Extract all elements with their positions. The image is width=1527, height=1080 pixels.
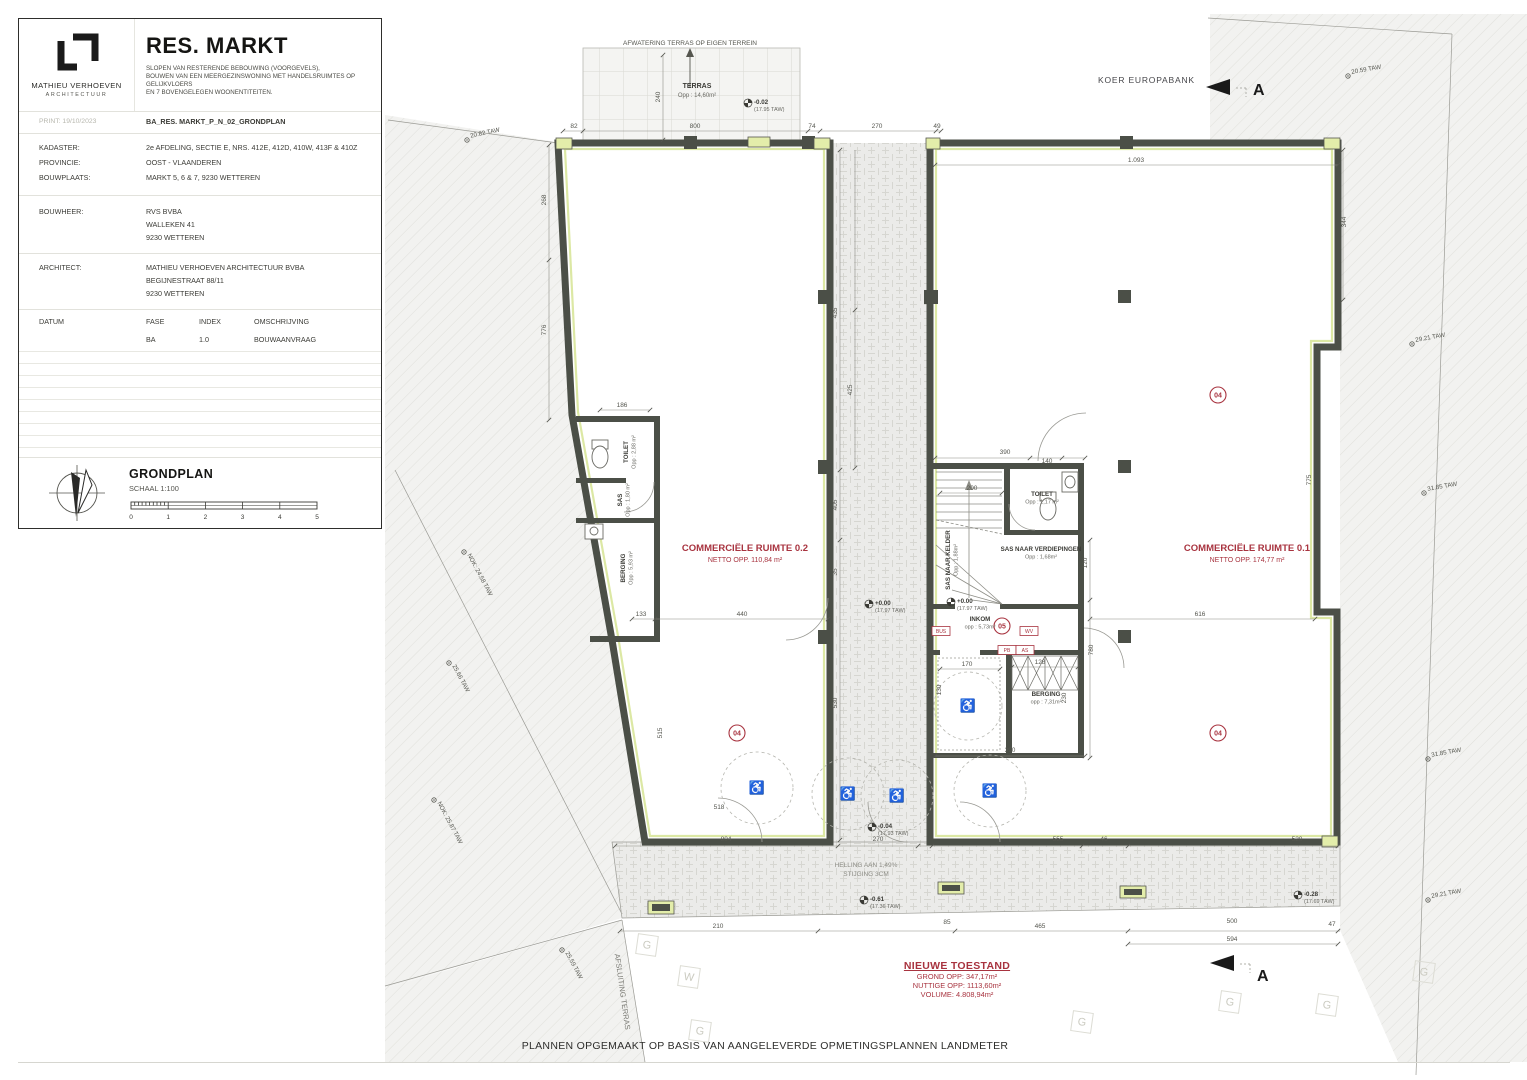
red-box-tag: WV (1020, 627, 1038, 636)
dimension-text: 130 (936, 684, 943, 695)
plan-scale: SCHAAL 1:100 (129, 484, 179, 493)
wheelchair-icon: ♿ (840, 786, 856, 801)
project-description: SLOPEN VAN RESTERENDE BEBOUWING (VOORGEV… (146, 65, 374, 97)
section-letter: A (1253, 82, 1265, 99)
level-value: +0.00 (875, 600, 891, 607)
terras-label: TERRAS (683, 83, 712, 90)
room-area: Opp : 1,88m² (954, 544, 960, 576)
dimension-text: 140 (1042, 458, 1053, 465)
kadaster-section: KADASTER: 2e AFDELING, SECTIE E, NRS. 41… (19, 133, 381, 196)
section-marker-bottom: A (1210, 955, 1269, 985)
sheet-frame-line (18, 1062, 1510, 1063)
compass-icon (47, 463, 107, 523)
dimension-text: 46 (1100, 836, 1108, 843)
utility-letter: G (1225, 996, 1235, 1009)
utility-letter: G (1419, 966, 1429, 979)
dimension-text: 200 (967, 485, 978, 492)
room-name: SAS NAAR KELDER (945, 530, 952, 590)
dimension-text: 804 (721, 836, 732, 843)
dimension-text: 435 (832, 307, 839, 318)
utility-letter: G (695, 1025, 705, 1038)
level-taw: (17.69 TAW) (1304, 899, 1335, 905)
dimension-text: 270 (872, 123, 883, 130)
scale-bar: 0 1 2 3 4 5 (129, 499, 329, 523)
dimension-text: 530 (832, 697, 839, 708)
room-area: Opp : 5,93 m² (629, 551, 635, 585)
field-value: 9230 WETTEREN (146, 233, 204, 242)
commercial-room-name: COMMERCIËLE RUIMTE 0.2 (682, 543, 808, 554)
architect-name: MATHIEU VERHOEVEN (19, 81, 134, 90)
room-name: SAS (617, 494, 624, 507)
table-cell: BA (146, 335, 156, 344)
red-box-tag: BUS (932, 627, 950, 636)
empty-revision-rows (19, 351, 381, 458)
level-value: -0.02 (754, 99, 769, 106)
project-title: RES. MARKT (146, 33, 288, 59)
commercial-room-area: NETTO OPP. 110,84 m² (708, 557, 783, 564)
helling-note-2: STIJGING 3CM (843, 871, 889, 878)
room-area: Opp : 2,88 m² (632, 435, 638, 469)
field-value: MATHIEU VERHOEVEN ARCHITECTUUR BVBA (146, 263, 304, 272)
sheet: { "titleblock": { "logo_name": "MATHIEU … (0, 0, 1527, 1080)
dimension-text: 133 (636, 611, 647, 618)
field-value: 2e AFDELING, SECTIE E, NRS. 412E, 412D, … (146, 143, 357, 152)
dimension-text: 230 (1061, 692, 1068, 703)
dimension-text: 616 (1195, 611, 1206, 618)
print-date: PRINT: 19/10/2023 (39, 118, 96, 125)
dimension-text: 425 (847, 384, 854, 395)
level-taw: (17.93 TAW) (878, 831, 909, 837)
room-area: Opp : 1,17 m² (1025, 500, 1059, 506)
level-value: -0.61 (870, 896, 885, 903)
utility-marker: G (1071, 1011, 1094, 1034)
red-box-text: WV (1025, 629, 1034, 635)
room-area: opp : 5,73m² (965, 625, 996, 631)
dimension-text: 555 (1053, 836, 1064, 843)
table-cell: BOUWAANVRAAG (254, 335, 316, 344)
dimension-text: 82 (570, 123, 578, 130)
description-line: EN 7 BOVENGELEGEN WOONENTITEITEN. (146, 89, 374, 97)
dimension-text: 170 (962, 661, 973, 668)
utility-marker: W (678, 966, 701, 989)
scale-tick: 0 (129, 514, 133, 521)
plan-name-section: GRONDPLAN SCHAAL 1:100 0 1 2 3 4 5 (19, 457, 381, 527)
door-tag: 04 (1210, 725, 1226, 741)
room-name: SAS NAAR VERDIEPINGEN (1001, 546, 1082, 553)
commercial-room-area: NETTO OPP. 174,77 m² (1210, 557, 1285, 564)
nuttige-opp: NUTTIGE OPP: 1113,60m² (866, 981, 1048, 990)
dimension-text: 800 (690, 123, 701, 130)
room-area: Opp : 1,68m² (1025, 555, 1057, 561)
wheelchair-icon: ♿ (889, 788, 905, 803)
wheelchair-icon: ♿ (982, 783, 998, 798)
koer-europabank-label: KOER EUROPABANK (1098, 75, 1195, 85)
print-row: PRINT: 19/10/2023 BA_RES. MARKT_P_N_02_G… (19, 111, 381, 134)
level-taw: (17.36 TAW) (870, 904, 901, 910)
door-tag: 05 (994, 618, 1010, 634)
dimension-text: 344 (1341, 216, 1348, 227)
drawing-code: BA_RES. MARKT_P_N_02_GRONDPLAN (146, 117, 285, 126)
dimension-text: 594 (1227, 936, 1238, 943)
table-header: INDEX (199, 317, 221, 326)
title-block: MATHIEU VERHOEVEN ARCHITECTUUR RES. MARK… (18, 18, 382, 529)
table-header: DATUM (39, 317, 64, 326)
field-value: WALLEKEN 41 (146, 220, 195, 229)
footer-note: PLANNEN OPGEMAAKT OP BASIS VAN AANGELEVE… (500, 1040, 1030, 1052)
level-taw: (17.95 TAW) (754, 107, 785, 113)
room-name: INKOM (970, 616, 991, 623)
room-name: BERGING (620, 553, 627, 582)
plan-name: GRONDPLAN (129, 467, 213, 481)
field-label: PROVINCIE: (39, 158, 81, 167)
utility-marker: G (689, 1020, 712, 1043)
room-name: TOILET (623, 441, 630, 463)
dimension-text: 268 (541, 194, 548, 205)
level-value: -0.04 (878, 823, 893, 830)
door-tag-number: 05 (998, 624, 1006, 631)
utility-marker: G (636, 934, 659, 957)
utility-letter: G (1322, 999, 1332, 1012)
scale-tick: 3 (241, 514, 245, 521)
field-label: BOUWPLAATS: (39, 173, 90, 182)
room-area: Opp : 1,80 m² (626, 483, 632, 517)
dimension-text: 74 (808, 123, 816, 130)
scale-tick: 5 (315, 514, 319, 521)
field-value: RVS BVBA (146, 207, 182, 216)
red-box-tag: PB (998, 646, 1016, 655)
dimension-text: 390 (1005, 747, 1016, 754)
dimension-text: 518 (714, 804, 725, 811)
dimension-text: 440 (737, 611, 748, 618)
nieuwe-toestand-title: NIEUWE TOESTAND (866, 960, 1048, 972)
dimension-text: 465 (1035, 923, 1046, 930)
dimension-text: 47 (1328, 921, 1336, 928)
dimension-text: 776 (541, 324, 548, 335)
door-tag-number: 04 (1214, 731, 1222, 738)
helling-note-1: HELLING AAN 1,49% (835, 862, 898, 869)
door-tag-number: 04 (1214, 393, 1222, 400)
architect-section: ARCHITECT: MATHIEU VERHOEVEN ARCHITECTUU… (19, 253, 381, 310)
dimension-text: 500 (1227, 918, 1238, 925)
section-letter: A (1257, 968, 1269, 985)
red-box-text: PB (1004, 648, 1011, 654)
field-label: ARCHITECT: (39, 263, 81, 272)
level-taw: (17.97 TAW) (875, 608, 906, 614)
dimension-text: 240 (655, 91, 662, 102)
dimension-text: 49 (933, 123, 941, 130)
logo-zone: MATHIEU VERHOEVEN ARCHITECTUUR (19, 19, 135, 111)
table-cell: 1.0 (199, 335, 209, 344)
dimension-text: 405 (832, 499, 839, 510)
architect-subtitle: ARCHITECTUUR (19, 92, 134, 98)
red-box-text: BUS (936, 629, 947, 635)
wheelchair-icon: ♿ (960, 698, 976, 713)
door-tag-number: 04 (733, 731, 741, 738)
dimension-text: 120 (1082, 557, 1089, 568)
level-value: -0.28 (1304, 891, 1319, 898)
room-name: BERGING (1032, 691, 1061, 698)
dimension-text: 128 (1035, 659, 1046, 666)
grond-opp: GROND OPP: 347,17m² (866, 972, 1048, 981)
dimension-text: 520 (1292, 836, 1303, 843)
revision-table: DATUM FASE INDEX OMSCHRIJVING BA 1.0 BOU… (19, 309, 381, 352)
table-header: FASE (146, 317, 164, 326)
dimension-text: 210 (713, 923, 724, 930)
dimension-text: 390 (1000, 449, 1011, 456)
level-taw: (17.97 TAW) (957, 606, 988, 612)
utility-marker: G (1219, 991, 1242, 1014)
field-value: BEGIJNESTRAAT 88/11 (146, 276, 224, 285)
utility-letter: G (1077, 1016, 1087, 1029)
dimension-text: 35 (832, 568, 839, 576)
scale-tick: 2 (204, 514, 208, 521)
utility-letter: G (642, 939, 652, 952)
volume: VOLUME: 4.808,94m² (866, 990, 1048, 999)
utility-marker: G (1316, 994, 1339, 1017)
architect-logo-icon (47, 29, 107, 79)
room-area: opp : 7,31m² (1031, 700, 1062, 706)
room-name: TOILET (1031, 491, 1053, 498)
dimension-text: 515 (657, 727, 664, 738)
passage-pavement (833, 143, 928, 845)
table-header: OMSCHRIJVING (254, 317, 309, 326)
dimension-text: 270 (873, 836, 884, 843)
field-label: KADASTER: (39, 143, 80, 152)
dimension-text: 186 (617, 402, 628, 409)
bouwheer-section: BOUWHEER: RVS BVBA WALLEKEN 41 9230 WETT… (19, 195, 381, 254)
dimension-text: 85 (943, 919, 951, 926)
afwatering-note: AFWATERING TERRAS OP EIGEN TERREIN (623, 40, 757, 47)
field-value: OOST - VLAANDEREN (146, 158, 221, 167)
door-tag: 04 (1210, 387, 1226, 403)
title-block-header: MATHIEU VERHOEVEN ARCHITECTUUR RES. MARK… (19, 19, 381, 112)
dimension-text: 780 (1088, 644, 1095, 655)
scale-tick: 4 (278, 514, 282, 521)
dimension-text: 1.093 (1128, 157, 1145, 164)
red-box-text: AS (1022, 648, 1029, 654)
field-value: MARKT 5, 6 & 7, 9230 WETTEREN (146, 173, 260, 182)
description-line: SLOPEN VAN RESTERENDE BEBOUWING (VOORGEV… (146, 65, 374, 73)
scale-tick: 1 (166, 514, 170, 521)
door-tag: 04 (729, 725, 745, 741)
nieuwe-toestand-block: NIEUWE TOESTAND GROND OPP: 347,17m² NUTT… (866, 960, 1048, 999)
utility-letter: W (683, 971, 696, 984)
wheelchair-icon: ♿ (749, 780, 765, 795)
red-box-tag: AS (1016, 646, 1034, 655)
terras-area-value: Opp : 14,60m² (678, 93, 716, 99)
field-label: BOUWHEER: (39, 207, 83, 216)
description-line: BOUWEN VAN EEN MEERGEZINSWONING MET HAND… (146, 73, 374, 89)
sidewalk-pavement (612, 842, 1340, 918)
commercial-room-name: COMMERCIËLE RUIMTE 0.1 (1184, 543, 1311, 554)
field-value: 9230 WETTEREN (146, 289, 204, 298)
dimension-text: 775 (1306, 474, 1313, 485)
level-value: +0.00 (957, 598, 973, 605)
